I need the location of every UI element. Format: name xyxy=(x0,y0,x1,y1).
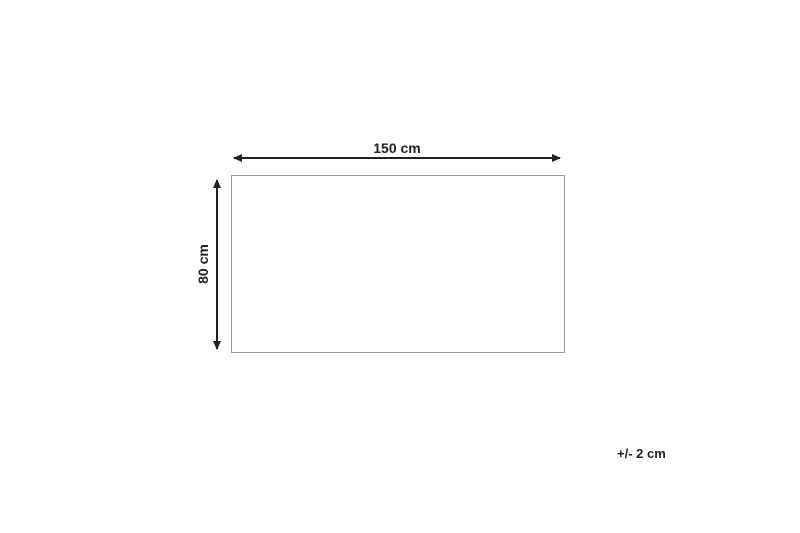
height-dimension-label: 80 cm xyxy=(195,228,211,300)
tolerance-label: +/- 2 cm xyxy=(617,446,666,461)
product-outline xyxy=(231,175,565,353)
dimension-diagram: 150 cm 80 cm +/- 2 cm xyxy=(0,0,800,533)
width-dimension-label: 150 cm xyxy=(331,140,463,156)
